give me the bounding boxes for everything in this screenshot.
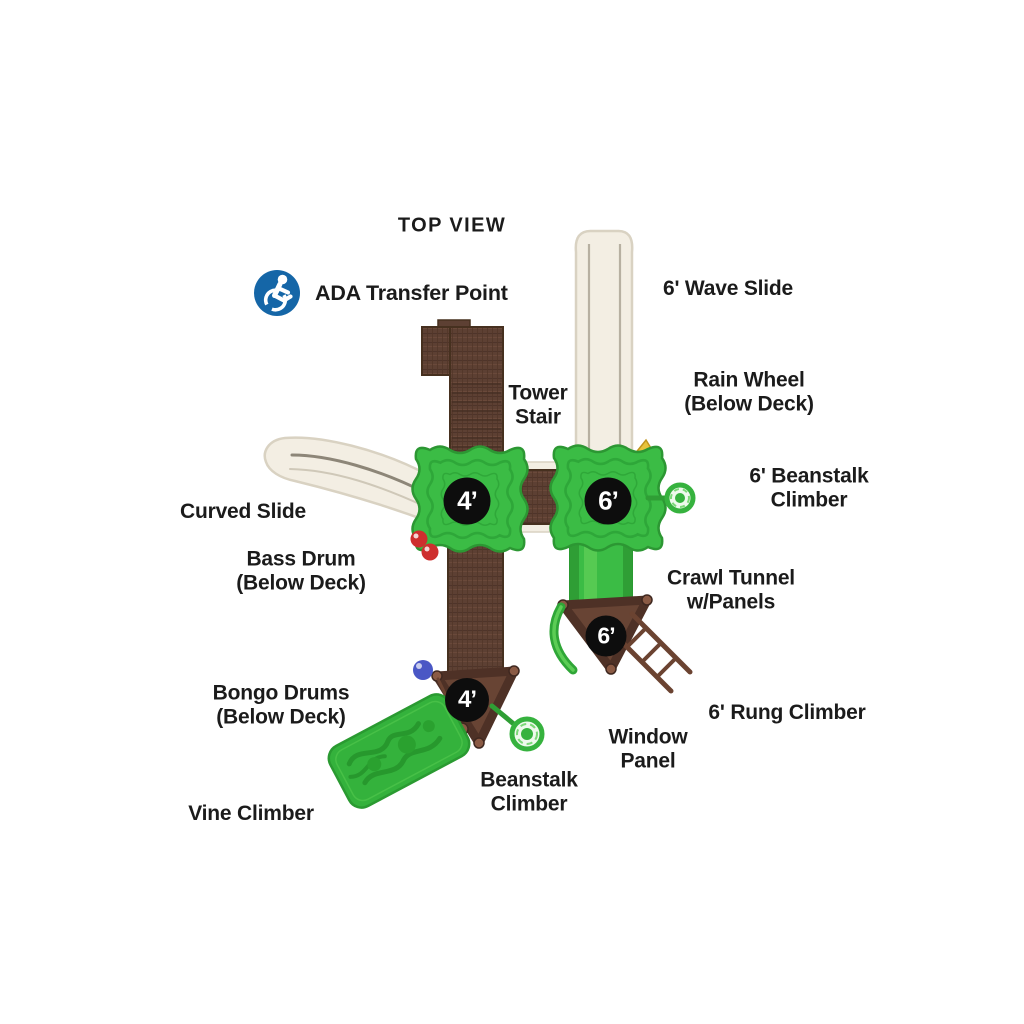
label-crawl-tunnel: Crawl Tunnel w/Panels: [667, 567, 795, 616]
wave-slide-shape: [576, 231, 632, 455]
label-tower-stair: Tower Stair: [508, 382, 567, 431]
label-bass-drum: Bass Drum (Below Deck): [236, 548, 365, 597]
playground-structure-svg: [0, 0, 1024, 1024]
ada-transfer-point-label: ADA Transfer Point: [315, 281, 508, 306]
deck-badge-4ft-lower: 4’: [445, 678, 489, 722]
label-rain-wheel: Rain Wheel (Below Deck): [684, 369, 813, 418]
bongo-drum-ball: [413, 660, 433, 680]
label-wave-slide: 6' Wave Slide: [663, 277, 793, 301]
ada-transfer-point: ADA Transfer Point: [253, 269, 508, 317]
tower-stair-structure: [422, 320, 503, 453]
deck-badge-6ft-main: 6’: [585, 478, 632, 525]
ada-wheelchair-icon: [253, 269, 301, 317]
label-curved-slide: Curved Slide: [180, 500, 306, 524]
page-title: TOP VIEW: [398, 214, 506, 237]
deck-badge-4ft-main: 4’: [444, 478, 491, 525]
label-beanstalk: Beanstalk Climber: [480, 769, 577, 818]
label-vine-climber: Vine Climber: [188, 802, 314, 826]
walkway-vertical: [448, 545, 503, 681]
label-beanstalk-6ft: 6' Beanstalk Climber: [749, 465, 868, 514]
playground-top-view-diagram: 4’ 6’ 6’ 4’ TOP VIEW ADA Transfer Point …: [0, 0, 1024, 1024]
beanstalk-climber-wheel: [492, 706, 542, 749]
label-bongo-drums: Bongo Drums (Below Deck): [213, 682, 350, 731]
label-rung-climber: 6' Rung Climber: [708, 701, 865, 725]
deck-badge-6ft-lower: 6’: [586, 616, 627, 657]
label-window-panel: Window Panel: [608, 726, 687, 775]
